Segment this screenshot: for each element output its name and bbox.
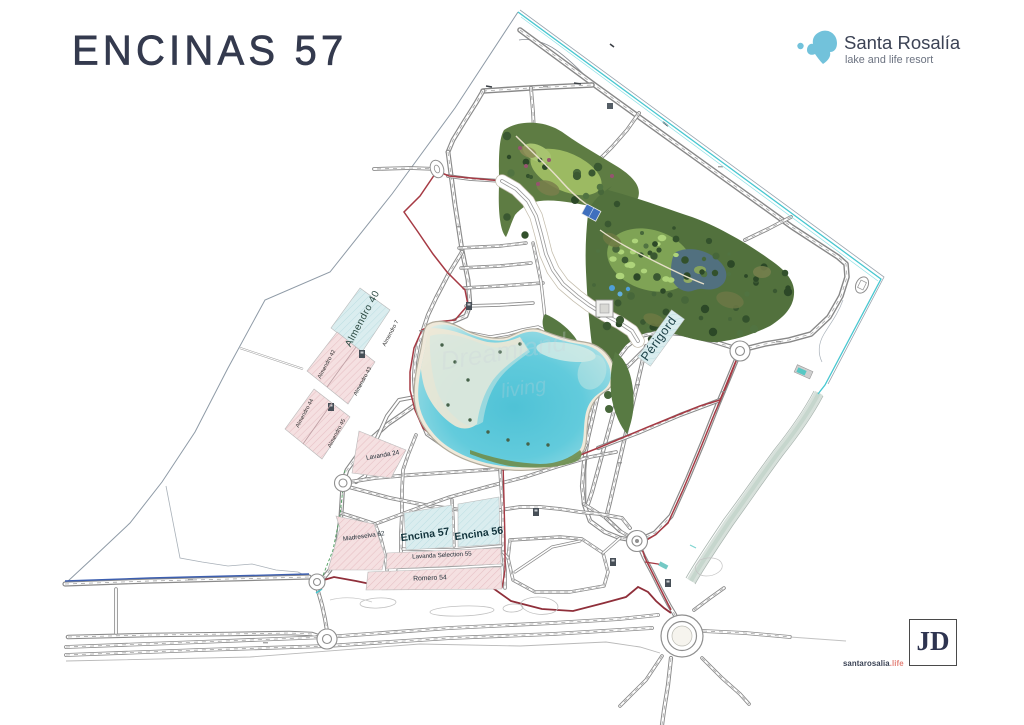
svg-text:Almendro 7: Almendro 7	[382, 319, 401, 347]
svg-text:Romero 54: Romero 54	[413, 574, 447, 582]
svg-text:Santa Rosalía: Santa Rosalía	[844, 32, 961, 53]
svg-text:lake and life resort: lake and life resort	[845, 54, 933, 66]
